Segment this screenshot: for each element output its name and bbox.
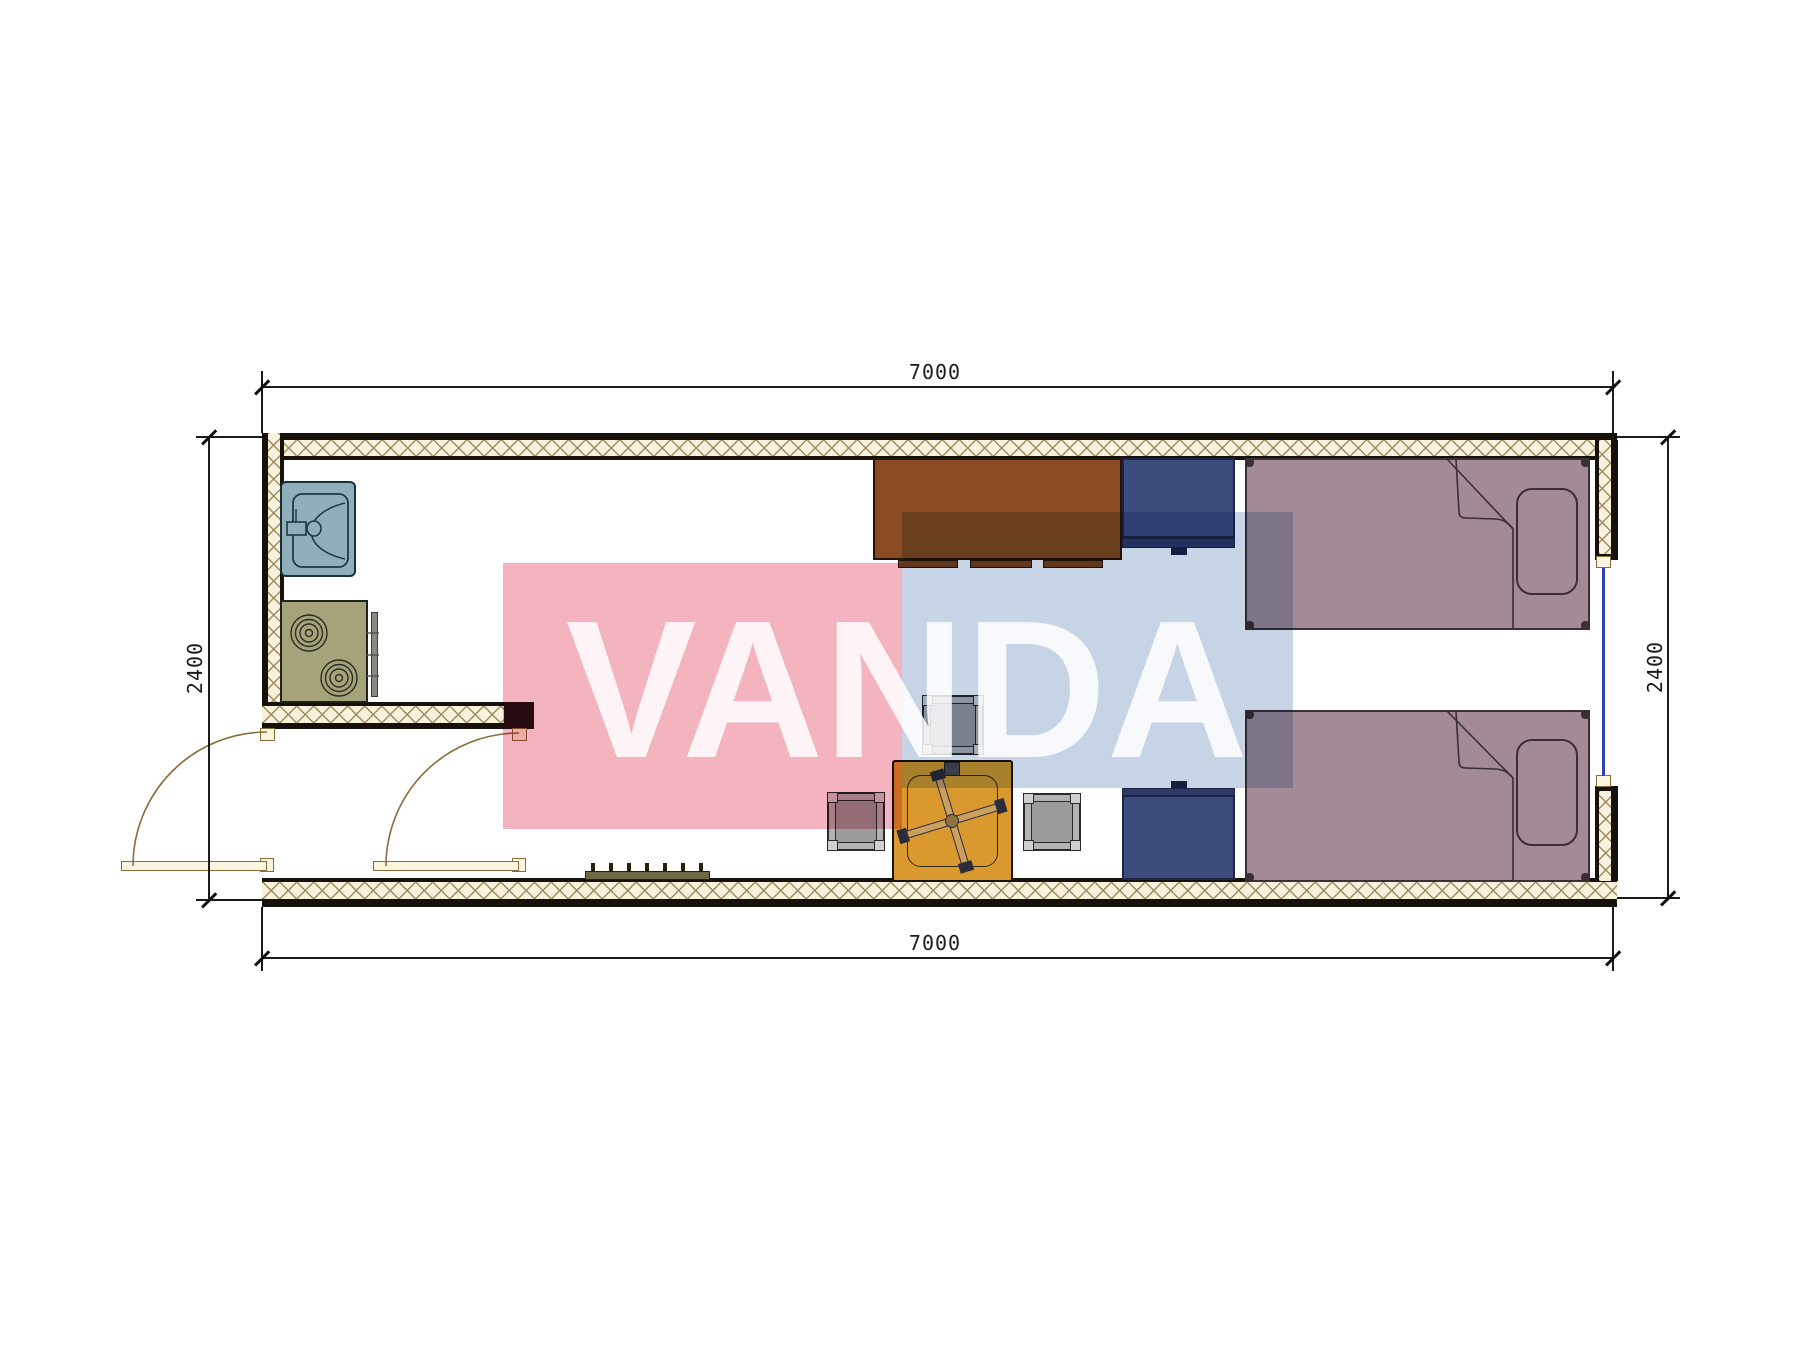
- sink-faucet-knob: [307, 521, 321, 536]
- bed-bottom-fold: [1447, 711, 1513, 881]
- ext-line: [1612, 371, 1614, 433]
- door-arc-left: [133, 732, 267, 866]
- dim-line-top: [262, 386, 1613, 388]
- floor-plan-canvas: 7000 7000 2400 2400 VANDA: [0, 0, 1800, 1350]
- stove-handle-ticks: [367, 633, 379, 676]
- door-arc-right: [386, 733, 519, 866]
- sink-faucet: [287, 522, 306, 535]
- ext-line: [1612, 907, 1614, 971]
- dim-label-bottom: 7000: [875, 931, 995, 955]
- bed-top-fold: [1447, 459, 1513, 629]
- watermark-text: VANDA: [540, 592, 1274, 788]
- dim-line-bottom: [262, 957, 1613, 959]
- stove-burner-1: [291, 615, 327, 651]
- ext-line: [261, 371, 263, 433]
- dim-label-right: 2400: [1643, 617, 1669, 717]
- dim-label-left: 2400: [183, 618, 209, 718]
- stove-burner-2: [321, 660, 357, 696]
- dim-label-top: 7000: [875, 360, 995, 384]
- ext-line: [261, 907, 263, 971]
